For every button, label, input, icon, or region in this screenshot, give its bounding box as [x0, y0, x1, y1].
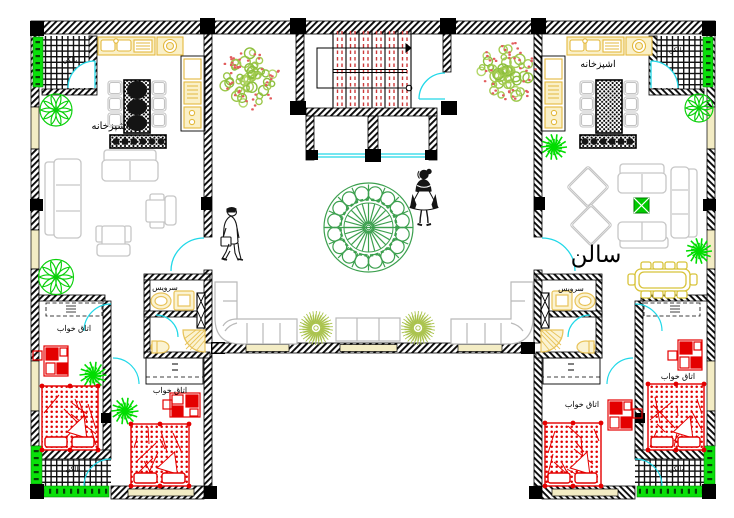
svg-text:اشپزخانه: اشپزخانه	[580, 59, 615, 70]
svg-text:اتاق خواب: اتاق خواب	[565, 400, 599, 409]
svg-text:اشپزخانه: اشپزخانه	[91, 121, 128, 132]
svg-text:بالكن: بالكن	[669, 46, 683, 54]
svg-text:سرویس: سرویس	[152, 283, 178, 292]
svg-text:اتاق خواب: اتاق خواب	[153, 386, 187, 395]
svg-text:بالكن: بالكن	[66, 465, 80, 473]
svg-text:بالكن: بالكن	[63, 56, 77, 64]
svg-text:اتاق خواب: اتاق خواب	[661, 372, 695, 381]
svg-text:بالكن: بالكن	[669, 465, 683, 473]
svg-text:سرویس: سرویس	[558, 284, 584, 293]
svg-text:سالن: سالن	[571, 241, 622, 268]
svg-text:اتاق خواب: اتاق خواب	[57, 324, 91, 333]
